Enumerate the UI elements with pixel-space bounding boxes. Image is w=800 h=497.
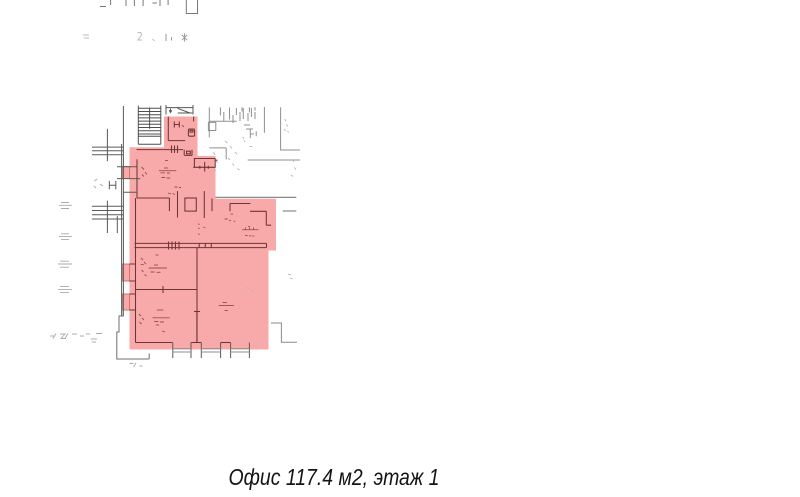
svg-text:Офис 117.4 м2, этаж 1: Офис 117.4 м2, этаж 1 [229, 464, 440, 490]
